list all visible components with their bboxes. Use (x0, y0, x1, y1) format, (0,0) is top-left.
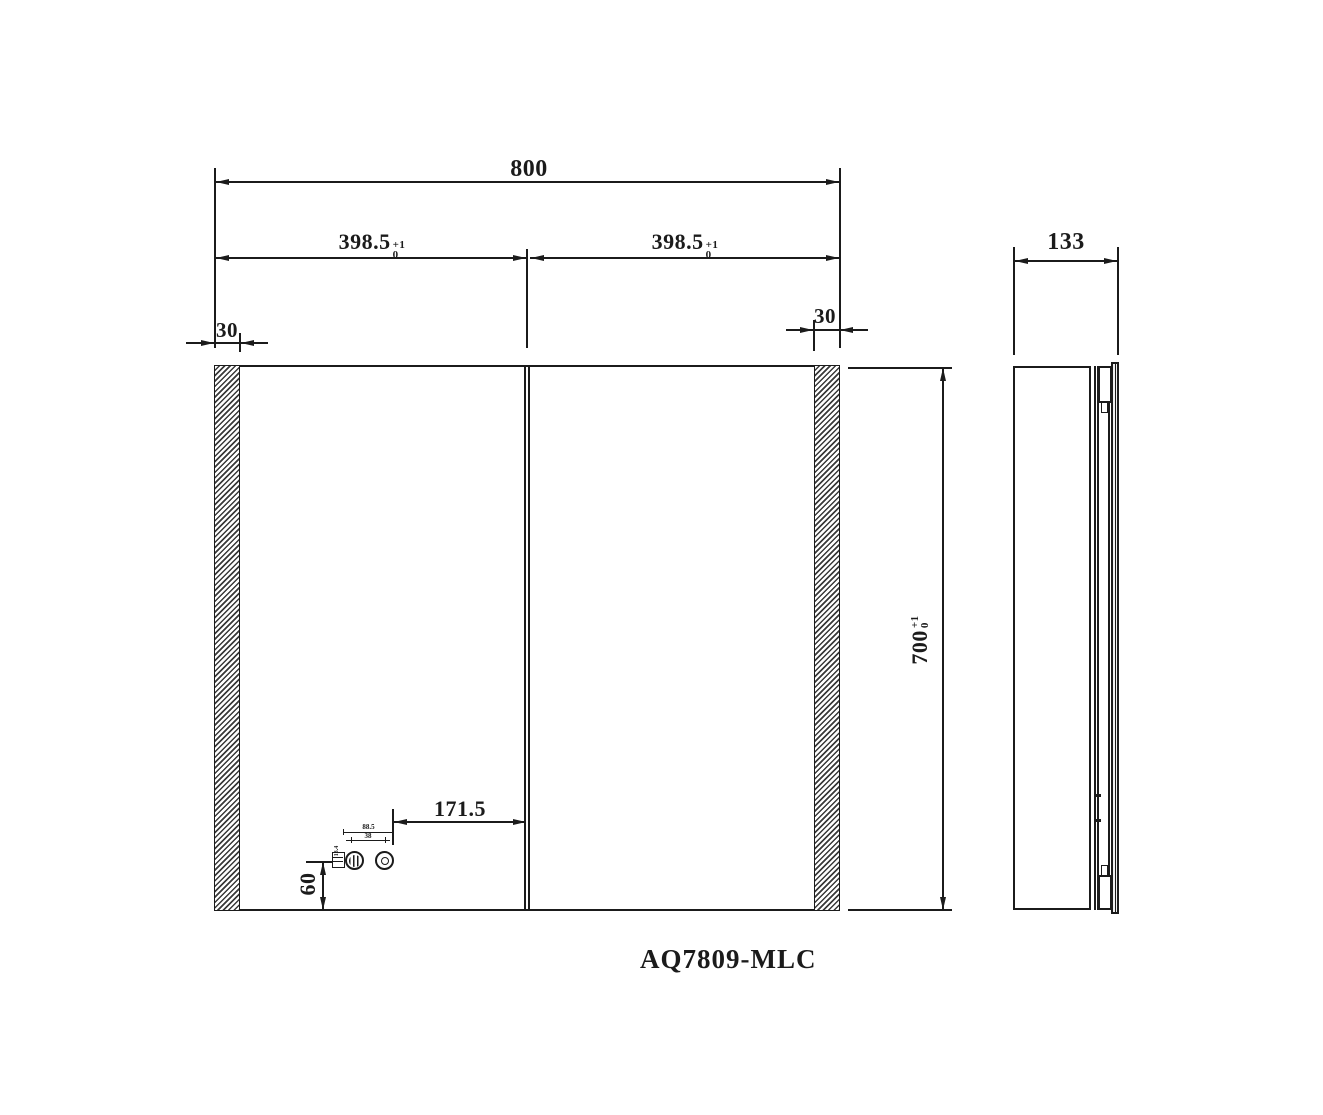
extension-line-top (848, 367, 952, 369)
tiny-dim-label-left: 13.4 (331, 840, 343, 862)
arrowhead-left (1015, 258, 1028, 264)
cabinet-side-body (1013, 366, 1091, 910)
tolerance-lower: 0 (706, 250, 712, 260)
dimension-line-30-right (786, 329, 868, 331)
side-detail-tick (1096, 819, 1101, 822)
extension-line-right (1117, 247, 1119, 355)
dim-label-30-left: 30 (213, 320, 241, 341)
side-door-gap-line (1094, 366, 1096, 910)
arrowhead-right (826, 255, 839, 261)
hinge-block-bottom (1098, 875, 1112, 910)
socket-symbol-left (345, 851, 364, 870)
dim-label-60: 60 (293, 859, 323, 909)
dimension-line-30-left (186, 342, 268, 344)
tolerance-lower: 0 (393, 250, 399, 260)
side-door-panel-line (1115, 364, 1116, 912)
arrowhead-left (216, 179, 229, 185)
tolerance-stack: +10 (910, 615, 930, 628)
arrowhead-left (216, 255, 229, 261)
tiny-dimension-line-bottom (346, 840, 390, 841)
dim-value: 700 (909, 630, 931, 665)
center-door-gap-line (524, 365, 530, 911)
socket-symbol-right (375, 851, 394, 870)
dimension-line-171 (393, 821, 526, 823)
hinge-stub-bottom (1101, 865, 1108, 876)
extension-line-bottom (848, 909, 952, 911)
arrowhead-left (840, 327, 853, 333)
arrowhead-right (513, 255, 526, 261)
arrowhead-left (531, 255, 544, 261)
side-detail-tick (1096, 794, 1101, 797)
arrowhead-left (241, 340, 254, 346)
dim-label-171: 171.5 (405, 798, 515, 820)
dim-label-700: 700+10 (895, 595, 945, 685)
socket-inner-ring (381, 857, 389, 865)
side-door-frame-line (1108, 366, 1110, 910)
tolerance-stack: +10 (706, 240, 719, 260)
dim-label-800: 800 (499, 157, 559, 181)
tiny-dim-label-bottom: 38 (351, 833, 385, 840)
dim-value: 398.5 (652, 229, 704, 254)
tolerance-lower: 0 (920, 622, 930, 628)
dim-label-133: 133 (1036, 230, 1096, 254)
arrowhead-right (1104, 258, 1117, 264)
dim-label-30-right: 30 (811, 306, 839, 327)
arrowhead-down (940, 897, 946, 910)
arrowhead-right (826, 179, 839, 185)
arrowhead-up (940, 368, 946, 381)
dim-label-398-right: 398.5+10 (620, 231, 750, 260)
dim-label-398-left: 398.5+10 (307, 231, 437, 260)
side-door-panel (1111, 362, 1119, 914)
dim-value: 398.5 (339, 229, 391, 254)
arrowhead-right (800, 327, 813, 333)
dimension-line-133 (1014, 260, 1118, 262)
model-number-label: AQ7809-MLC (640, 946, 800, 973)
hinge-stub-top (1101, 402, 1108, 413)
tolerance-stack: +10 (393, 240, 406, 260)
tiny-dim-label-top: 88.5 (343, 824, 394, 831)
side-door-inner-line (1097, 366, 1099, 910)
right-edge-hatch-strip (814, 365, 840, 911)
hinge-block-top (1098, 366, 1112, 403)
socket-vent-stripes (349, 855, 361, 867)
left-edge-hatch-strip (214, 365, 240, 911)
extension-line-center (526, 249, 528, 348)
technical-drawing-canvas: 800 398.5+10 398.5+10 30 30 700+10 171.5… (0, 0, 1323, 1115)
